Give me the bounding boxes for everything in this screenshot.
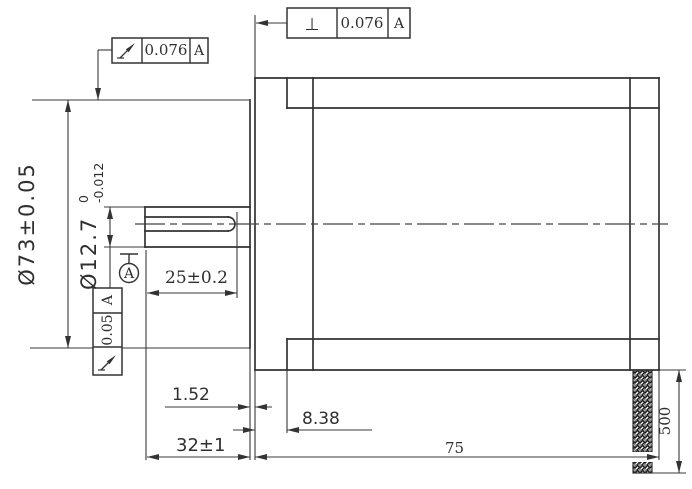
dim-lead-length: 500: [656, 407, 674, 436]
dim-flat-length: 25±0.2: [165, 268, 228, 288]
dim-body-length: 75: [445, 439, 464, 457]
dim-shaft-length: 32±1: [176, 435, 225, 456]
dim-shaft-lower-tol: -0.012: [91, 163, 106, 203]
datum-label: A: [123, 266, 135, 282]
shaft: [145, 207, 250, 247]
dim-shaft-diameter: Ø12.7: [77, 217, 101, 290]
perpendicularity-icon: ⊥: [305, 15, 320, 35]
dimension-lines: [68, 23, 679, 473]
dim-shaft-upper-tol: 0: [76, 195, 91, 203]
fcf-runout-top-datum: A: [193, 43, 205, 59]
fcf-perpendicularity: ⊥ 0.076 A: [287, 8, 410, 38]
dim-flange-thickness: 8.38: [302, 409, 340, 429]
fcf-runout-left-datum: A: [100, 294, 116, 306]
fcf-runout-top-tolerance: 0.076: [145, 41, 188, 59]
dim-flange-diameter: Ø73±0.05: [15, 162, 39, 286]
fcf-top-datum: A: [393, 16, 405, 32]
drawing-page: ⊥ 0.076 A 0.076 A A 0.05 A: [0, 0, 692, 489]
extension-lines: [30, 15, 686, 473]
dim-boss-protrusion: 1.52: [172, 385, 210, 405]
engineering-drawing: ⊥ 0.076 A 0.076 A A 0.05 A: [0, 0, 692, 489]
fcf-runout-left: A 0.05: [93, 288, 122, 375]
fcf-runout-left-tolerance: 0.05: [100, 314, 116, 345]
fcf-runout-top: 0.076 A: [112, 38, 208, 63]
fcf-top-tolerance: 0.076: [341, 14, 384, 32]
datum-flag: A: [120, 254, 139, 283]
